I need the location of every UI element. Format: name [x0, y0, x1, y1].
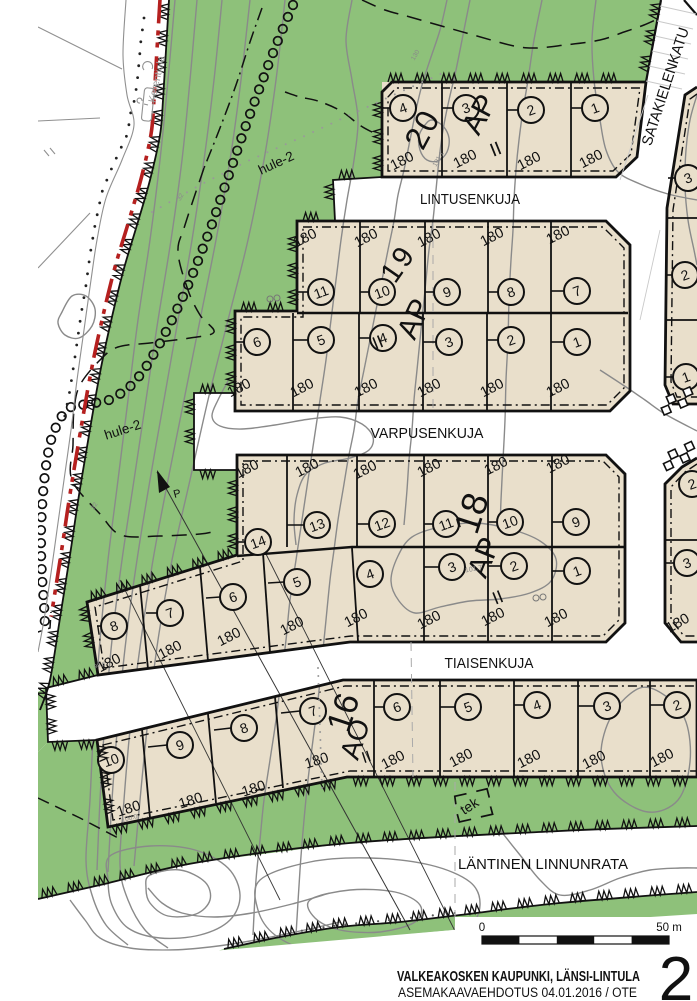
svg-text:2: 2	[659, 945, 693, 1001]
svg-text:0: 0	[479, 922, 485, 934]
svg-text:LINTUSENKUJA: LINTUSENKUJA	[420, 191, 520, 208]
svg-text:ASEMAKAAVAEHDOTUS 04.01.2016: ASEMAKAAVAEHDOTUS 04.01.2016 / OTE	[398, 985, 637, 1001]
svg-text:50 m: 50 m	[656, 922, 682, 934]
svg-text:VALKEAKOSKEN KAUPUNKI, LÄNSI-L: VALKEAKOSKEN KAUPUNKI, LÄNSI-LINTULA	[397, 968, 640, 985]
svg-text:TIAISENKUJA: TIAISENKUJA	[445, 655, 534, 672]
svg-text:LÄNTINEN LINNUNRATA: LÄNTINEN LINNUNRATA	[458, 856, 628, 873]
svg-text:VARPUSENKUJA: VARPUSENKUJA	[371, 425, 484, 442]
